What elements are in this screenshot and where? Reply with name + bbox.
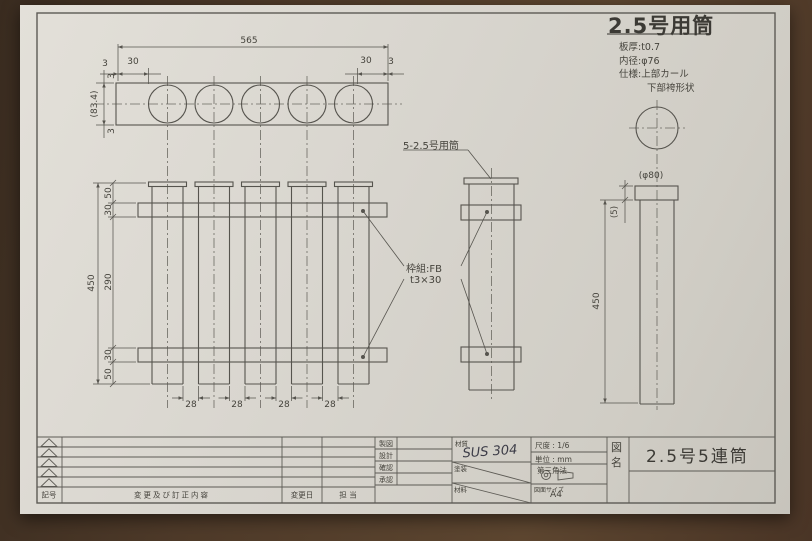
dim-margin-right-3: 3 bbox=[388, 57, 394, 67]
spec-top-shape: 仕様:上部カール bbox=[619, 66, 689, 80]
sign-label-approved: 承認 bbox=[379, 475, 393, 485]
dimension-lines bbox=[93, 44, 638, 403]
dim-pitch-left-30: 30 bbox=[127, 57, 138, 67]
coating-label: 塗装 bbox=[454, 463, 467, 473]
revision-symbol-header: 記号 bbox=[42, 490, 57, 501]
dim-margin-left-3: 3 bbox=[102, 59, 108, 69]
stock-label: 材料 bbox=[454, 484, 467, 494]
dim-pitch-right-30: 30 bbox=[360, 56, 371, 66]
dim-part-height-450: 450 bbox=[592, 292, 602, 309]
callout-frame-line2: t3×30 bbox=[410, 275, 441, 286]
dim-front-top-50: 50 bbox=[104, 187, 114, 198]
dim-front-mid-290: 290 bbox=[104, 273, 114, 290]
drawing-name-label: 図名 bbox=[611, 441, 625, 471]
dim-depth-83-4: (83.4) bbox=[90, 90, 100, 117]
spec-bottom-shape: 下部袴形状 bbox=[647, 80, 695, 94]
revision-person-header: 担 当 bbox=[339, 490, 356, 501]
dim-gap-28-1: 28 bbox=[185, 400, 196, 410]
revision-content-header: 変更及び訂正内容 bbox=[134, 490, 210, 501]
part-view bbox=[635, 107, 678, 404]
dim-part-diameter: (φ80) bbox=[639, 171, 663, 181]
sheet-size-value: A4 bbox=[550, 490, 562, 500]
drawing-name-value: 2.5号5連筒 bbox=[646, 442, 749, 467]
sign-label-drafted: 製図 bbox=[379, 439, 393, 449]
dim-part-cap-5: (5) bbox=[610, 206, 620, 218]
side-view bbox=[461, 178, 521, 390]
unit-field: 単位 : mm bbox=[535, 454, 572, 465]
dim-depth-top-3: 3 bbox=[107, 73, 117, 79]
spec-inner-diameter: 内径:φ76 bbox=[619, 53, 660, 67]
part-title: 2.5号用筒 bbox=[608, 10, 714, 40]
dim-gap-28-4: 28 bbox=[324, 400, 335, 410]
photo-of-technical-drawing: 2.5号用筒 板厚:t0.7 内径:φ76 仕様:上部カール 下部袴形状 565… bbox=[0, 0, 812, 541]
dim-front-bar-bottom-30: 30 bbox=[104, 349, 114, 360]
spec-thickness: 板厚:t0.7 bbox=[619, 39, 660, 53]
projection-label: 第三角法 bbox=[537, 465, 567, 476]
callout-frame-line1: 枠組:FB bbox=[406, 260, 442, 275]
sign-label-designed: 設計 bbox=[379, 451, 393, 461]
dim-gap-28-3: 28 bbox=[278, 400, 289, 410]
dim-front-overall-450: 450 bbox=[87, 274, 97, 291]
dim-front-bottom-50: 50 bbox=[104, 368, 114, 379]
dim-front-bar-top-30: 30 bbox=[104, 204, 114, 215]
dim-gap-28-2: 28 bbox=[231, 400, 242, 410]
sign-label-checked: 確認 bbox=[379, 463, 393, 473]
callout-five-tubes: 5-2.5号用筒 bbox=[403, 137, 459, 152]
revision-date-header: 変更日 bbox=[291, 490, 314, 501]
scale-field: 尺度 : 1/6 bbox=[535, 440, 569, 451]
front-view bbox=[138, 182, 387, 384]
dim-overall-565: 565 bbox=[240, 36, 257, 46]
dim-depth-bottom-3: 3 bbox=[107, 128, 117, 134]
